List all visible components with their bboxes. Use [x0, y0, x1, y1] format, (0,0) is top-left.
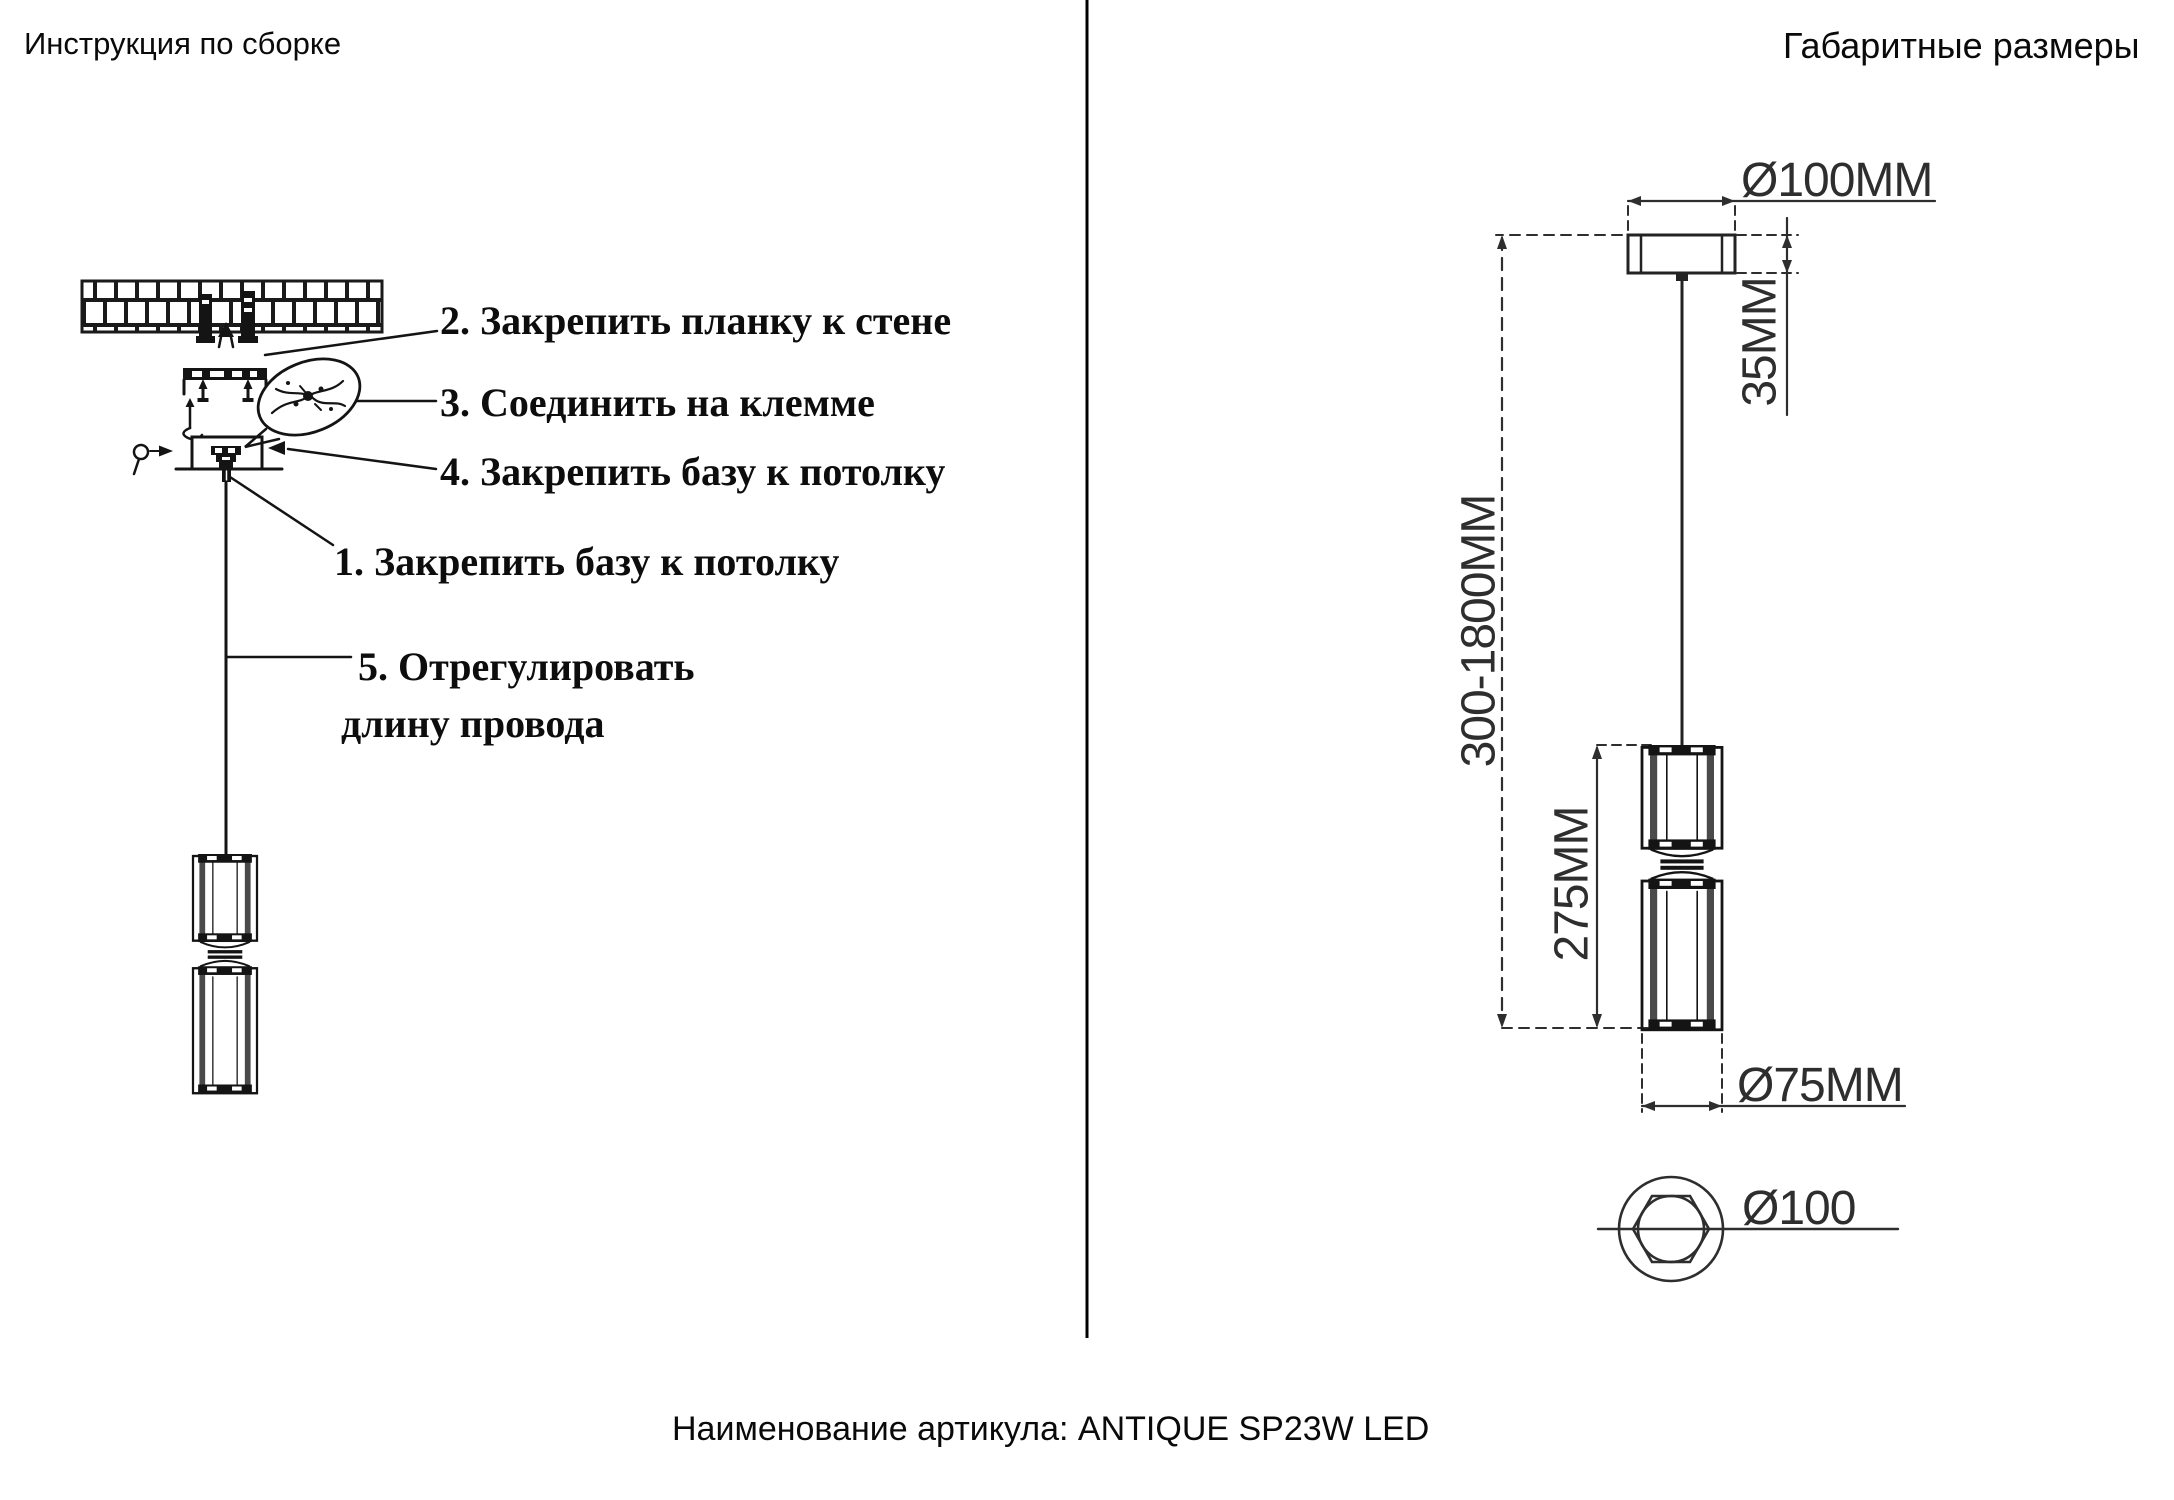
dim-label-body-diameter: Ø75MM — [1737, 1058, 1903, 1113]
step-1-label: 1. Закрепить базу к потолку — [334, 538, 839, 585]
terminal-bubble — [245, 345, 371, 450]
step-5-label-line2: длину провода — [341, 700, 604, 747]
step-2-label: 2. Закрепить планку к стене — [440, 297, 951, 344]
dim-label-canopy-height: 35MM — [1733, 277, 1788, 406]
dim-label-suspension-length: 300-1800MM — [1452, 495, 1507, 768]
pendant-lamp — [193, 854, 257, 1093]
screw-icon — [198, 379, 209, 402]
dim-label-canopy-diameter: Ø100MM — [1741, 153, 1932, 208]
side-screw-icon — [134, 445, 173, 474]
rotate-screw-icon — [183, 398, 202, 439]
right-panel-title: Габаритные размеры — [1783, 25, 2140, 67]
pendant-lamp-dimensioned — [1642, 745, 1722, 1030]
left-panel-title: Инструкция по сборке — [24, 26, 341, 62]
dim-label-bottom-diameter: Ø100 — [1742, 1181, 1855, 1236]
arrow-into-base — [268, 441, 285, 455]
dimension-drawing — [1496, 196, 1935, 1281]
wall-section — [82, 281, 382, 347]
technical-drawing — [0, 0, 2174, 1500]
dim-label-body-height: 275MM — [1545, 806, 1600, 961]
article-name: Наименование артикула: ANTIQUE SP23W LED — [672, 1410, 1429, 1449]
step-3-label: 3. Соединить на клемме — [440, 379, 875, 426]
ceiling-base — [176, 437, 282, 482]
screw-icon — [243, 379, 254, 402]
instruction-sheet: Инструкция по сборке Габаритные размеры … — [0, 0, 2174, 1500]
mounting-bracket — [183, 368, 267, 402]
step-5-label-line1: 5. Отрегулировать — [358, 643, 695, 690]
canopy — [1628, 235, 1735, 281]
step-4-label: 4. Закрепить базу к потолку — [440, 448, 945, 495]
